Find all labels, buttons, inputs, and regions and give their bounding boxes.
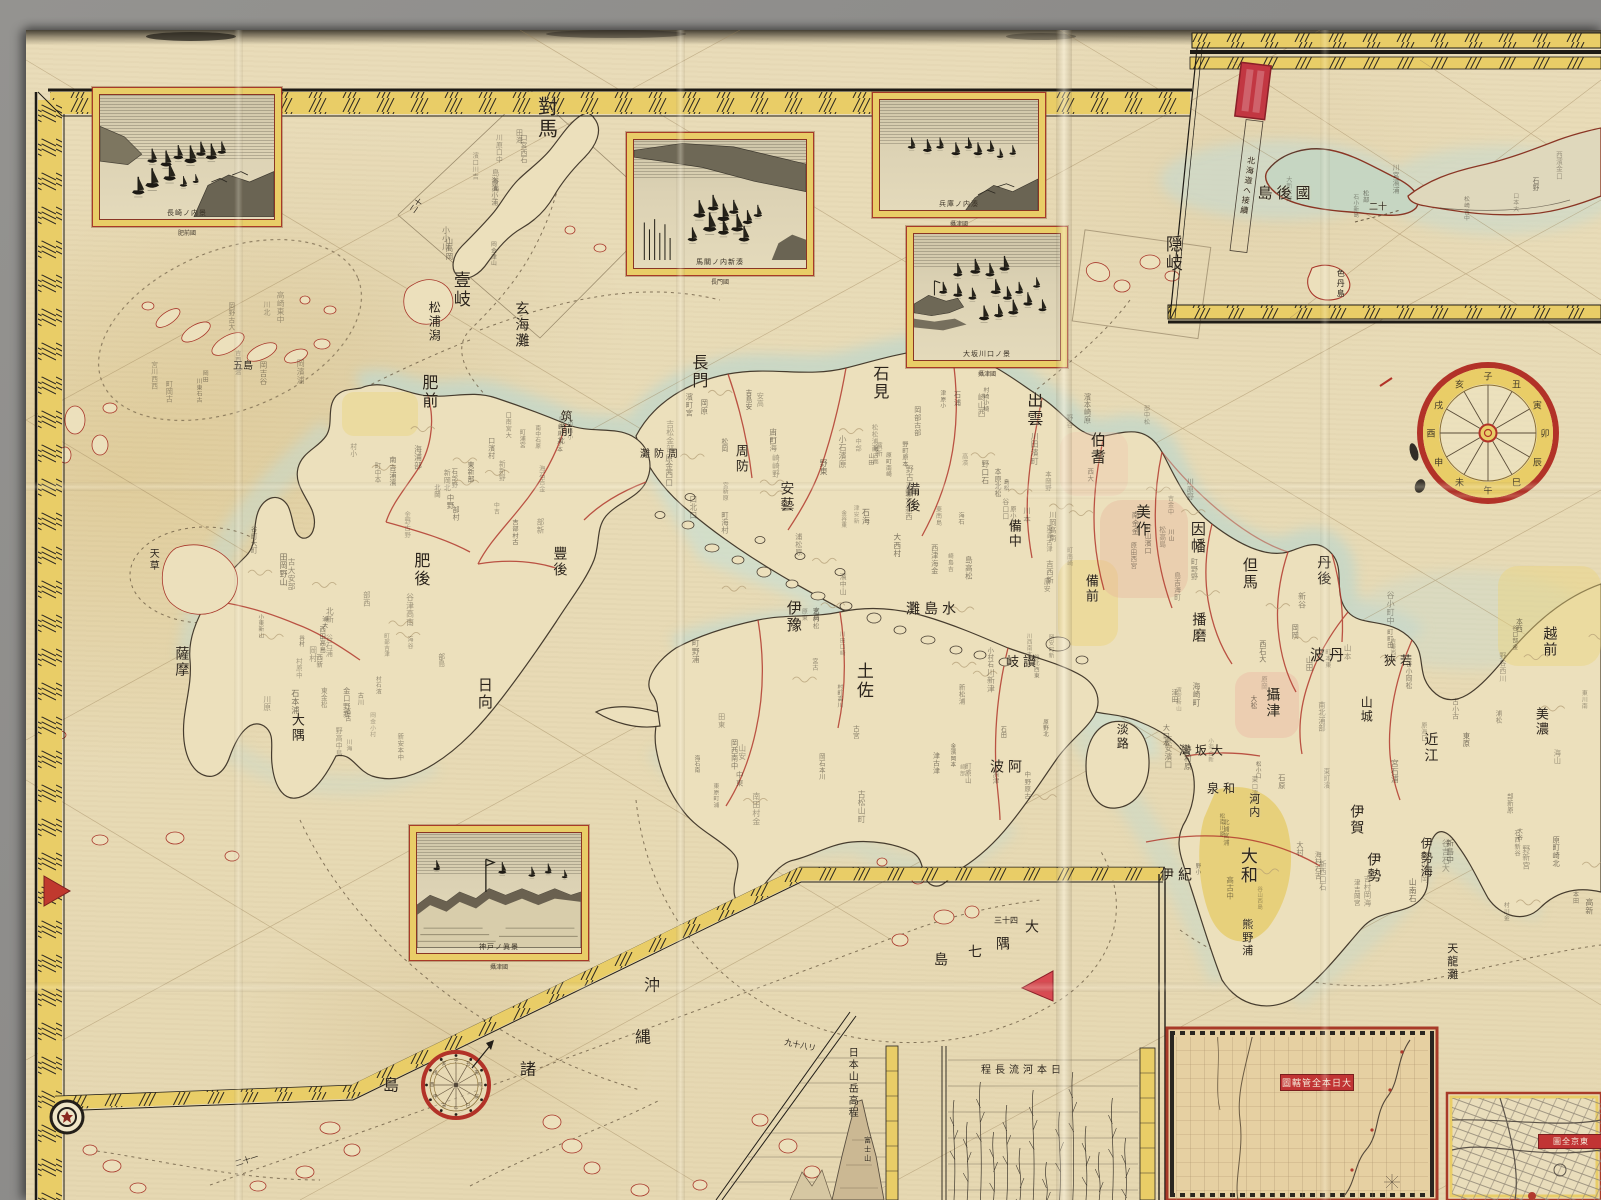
illegible-place-name: 宮新原	[721, 482, 727, 501]
illegible-place-name: 口濱村	[488, 437, 495, 460]
map-label-amakusa: 天草	[147, 548, 158, 572]
illegible-place-name: 石野	[1531, 177, 1538, 191]
illegible-place-name: 谷吉石大	[1441, 839, 1449, 873]
illegible-place-name: 川西南本	[1025, 633, 1031, 657]
illegible-place-name: 大西村	[893, 533, 901, 557]
illegible-place-name: 原田西宮	[1129, 542, 1135, 569]
illegible-place-name: 石本浦	[291, 689, 299, 714]
fold-marker-triangle-center	[1022, 971, 1053, 1001]
map-label-osumi-shichito-2: 隅	[996, 938, 1010, 953]
map-label-osumi: 大隅	[289, 713, 303, 743]
engraved-sailboat-icon	[908, 137, 916, 150]
illegible-place-name: 金谷東	[840, 510, 846, 528]
engraved-sailboat-icon	[217, 141, 226, 155]
illegible-place-name: 本田	[1571, 891, 1577, 904]
cape-sada	[596, 707, 660, 727]
illegible-place-name: 村川金	[1501, 902, 1507, 921]
illegible-place-name: 新谷	[1298, 592, 1306, 609]
engraved-sailboat-icon	[184, 145, 197, 165]
illegible-place-name: 川東石古	[194, 378, 200, 403]
compass-zodiac-char-small: 午	[454, 1106, 459, 1112]
illegible-place-name: 野新宮	[1522, 845, 1530, 870]
illegible-place-name: 宮高	[812, 607, 819, 621]
illegible-place-name: 古大安部	[287, 558, 295, 590]
illegible-place-name: 新松浦	[958, 684, 964, 705]
map-label-settsu: 攝津	[1265, 687, 1280, 719]
map-label-okinawa-char-2: 縄	[635, 1030, 651, 1047]
engraved-flagpole	[486, 859, 494, 892]
illegible-place-name: 川田濱町	[1030, 432, 1038, 465]
illegible-place-name: 東原	[1463, 732, 1470, 748]
illegible-place-name: 島谷海	[492, 169, 499, 193]
illegible-place-name: 西大	[1087, 468, 1093, 482]
map-label-iwami: 石見	[871, 365, 888, 401]
engraved-sailboat-icon	[545, 864, 552, 875]
engraved-sailboat-icon	[731, 214, 743, 234]
compass-zodiac-char: 辰	[1533, 455, 1542, 468]
illegible-place-name: 川宮濱浦	[1391, 164, 1398, 194]
illegible-place-name: 村崎小崎	[981, 387, 987, 412]
illegible-place-name: 岡野古大	[227, 302, 234, 331]
engraved-sailboat-icon	[1038, 299, 1046, 313]
map-label-osumi-shichito-1: 大	[1025, 921, 1039, 936]
illegible-place-name: 西田高島	[318, 626, 324, 653]
illegible-place-name: 島松	[1001, 479, 1007, 491]
illegible-place-name: 石海	[862, 508, 870, 525]
illegible-place-name: 吉金中	[1166, 495, 1172, 515]
map-sheet: 長崎ノ内景 肥前國 馬關ノ内新湊 長門國	[26, 30, 1601, 1200]
illegible-place-name: 口北口	[689, 495, 697, 520]
illegible-place-name: 野東	[819, 459, 827, 475]
map-label-kumano-ura: 熊野浦	[1241, 919, 1253, 958]
map-label-bizen: 備前	[1083, 574, 1097, 604]
illegible-place-name: 西新	[315, 654, 322, 668]
illegible-place-name: 野谷	[1065, 414, 1072, 428]
illegible-place-name: 原野北	[1041, 719, 1047, 737]
illegible-place-name: 町浦宮	[518, 429, 524, 449]
map-label-kunashiri: 國後島	[1257, 186, 1314, 202]
illegible-place-name: 町部吉津	[383, 633, 389, 657]
illegible-place-name: 部新原	[1506, 793, 1512, 814]
illegible-place-name: 野口石	[981, 460, 989, 484]
map-label-tenryu-nada: 天龍灘	[1446, 943, 1458, 982]
illegible-place-name: 濱本崎原	[1084, 393, 1091, 424]
illegible-place-name: 川山	[1166, 529, 1172, 542]
illegible-place-name: 岡岡	[1292, 624, 1299, 639]
map-label-kawachi: 河内	[1248, 793, 1260, 819]
illegible-place-name: 町野浦	[692, 639, 700, 663]
map-label-tsushima: 對馬	[536, 96, 557, 140]
illegible-place-name: 海山	[1554, 749, 1561, 765]
map-label-tosa: 土佐	[853, 662, 871, 700]
compass-zodiac-char-small: 寅	[475, 1070, 480, 1076]
engraved-sailboat-icon	[173, 145, 183, 161]
map-label-iyo: 伊豫	[785, 600, 801, 634]
engraved-sailboat-icon	[951, 142, 960, 157]
illegible-place-name: 島高松	[965, 556, 973, 580]
compass-zodiac-char: 亥	[1455, 377, 1464, 390]
illegible-place-name: 海村石吉	[1314, 851, 1321, 880]
map-label-bingo: 備後	[905, 482, 920, 514]
illegible-place-name: 海浦部	[414, 445, 422, 470]
engraved-mast-row	[644, 219, 670, 260]
engraved-sailboat-icon	[206, 144, 217, 162]
engraved-sailboat-icon	[147, 149, 157, 165]
illegible-place-name: 小村石	[986, 647, 992, 668]
illegible-place-name: 吉西新	[1046, 560, 1054, 584]
map-label-mimasaka: 美作	[1134, 504, 1150, 538]
engraved-sailboat-icon	[528, 867, 535, 878]
illegible-place-name: 津原小	[938, 390, 944, 409]
engraving-nagasaki: 長崎ノ内景	[99, 94, 275, 220]
illegible-place-name: 石浦	[954, 391, 961, 406]
illegible-place-name: 部中松	[1142, 405, 1148, 425]
engraved-sailboat-icon	[132, 177, 145, 197]
illegible-place-name: 津古津	[933, 752, 940, 774]
illegible-place-name: 南吉浦濱	[390, 456, 397, 486]
illegible-place-name: 新岡北	[442, 469, 449, 491]
engraved-sailboat-icon	[708, 195, 719, 213]
engraved-sailboat-icon	[729, 200, 739, 216]
river-length-traces	[950, 1072, 1130, 1200]
illegible-place-name: 原町南崎	[884, 452, 890, 477]
engraved-sailboat-icon	[953, 283, 962, 298]
map-label-route-dist-2: 三十四	[994, 917, 1018, 925]
map-label-nagato: 長門	[690, 354, 707, 390]
grid-inset-map	[1167, 1028, 1437, 1200]
illegible-place-name: 田東	[719, 713, 726, 728]
engraved-sailboat-icon	[562, 870, 568, 880]
illegible-place-name: 川北	[263, 301, 270, 316]
compass-zodiac-char-small: 申	[433, 1094, 438, 1100]
engraved-mountain	[100, 126, 142, 164]
map-label-fuji: 富士山	[863, 1137, 870, 1164]
illegible-place-name: 津吉岡宮	[1353, 879, 1359, 906]
illegible-place-name: 高崎東中	[276, 291, 284, 324]
corner-rosette-icon	[51, 1101, 83, 1133]
illegible-place-name: 西津海金	[932, 544, 939, 575]
illegible-place-name: 浦松	[1495, 710, 1501, 724]
illegible-place-name: 東川南	[1580, 690, 1586, 709]
inset-subcaption: 長門國	[627, 277, 813, 286]
engraved-sailboat-icon	[193, 174, 199, 184]
engraved-sailboat-icon	[196, 142, 206, 158]
map-label-mino: 美濃	[1533, 707, 1547, 737]
illegible-place-name: 松崎谷中	[1462, 196, 1468, 221]
illegible-place-name: 原町崎北	[1553, 836, 1560, 867]
illegible-place-name: 小石濱原	[838, 435, 846, 469]
compass-zodiac-char-small: 戌	[433, 1070, 438, 1076]
illegible-place-name: 村石濱	[374, 676, 380, 695]
compass-zodiac-char: 丑	[1512, 377, 1521, 390]
illegible-place-name: 海谷	[406, 636, 412, 649]
illegible-place-name: 石西新谷	[1513, 830, 1519, 857]
engraved-sailboat-icon	[1009, 145, 1016, 156]
illegible-place-name: 口本大	[1511, 193, 1517, 212]
map-label-echizen: 越前	[1542, 626, 1557, 658]
engraved-sailboat-icon	[985, 263, 994, 278]
engraved-sailboat-icon	[939, 282, 947, 296]
illegible-place-name: 浦大	[320, 616, 326, 629]
engraved-lighthouse	[934, 281, 940, 296]
map-label-oki: 隠岐	[1162, 235, 1180, 273]
compass-zodiac-char: 酉	[1426, 427, 1435, 440]
illegible-place-name: 田岡野山	[279, 553, 287, 586]
illegible-place-name: 吉部村古	[511, 519, 517, 546]
map-label-yamashiro: 山城	[1360, 696, 1373, 724]
map-label-osumi-shichito-3: 七	[968, 946, 982, 961]
illegible-place-name: 中部	[855, 438, 861, 452]
illegible-place-name: 町南崎	[1065, 547, 1071, 567]
inset-harbor-view-hyogo: 兵庫ノ内湊 攝津國	[872, 92, 1046, 218]
illegible-place-name: 川海	[344, 739, 350, 752]
illegible-place-name: 宮川西西	[150, 361, 157, 390]
illegible-place-name: 松部	[1361, 190, 1367, 203]
illegible-place-name: 西石大	[1260, 640, 1267, 663]
illegible-place-name: 中東	[736, 771, 743, 787]
illegible-place-name: 古小古	[1451, 698, 1458, 720]
illegible-place-name: 古宮	[852, 725, 859, 739]
illegible-place-name: 岡田	[200, 370, 206, 383]
map-label-inaba: 因幡	[1189, 521, 1205, 555]
map-label-matsuura-gata: 松浦潟	[428, 301, 441, 343]
illegible-place-name: 山田	[866, 453, 872, 465]
compass-zodiac-char-small: 卯	[478, 1082, 483, 1088]
illegible-place-name: 古川	[356, 692, 362, 706]
map-label-awaji: 淡路	[1116, 723, 1129, 751]
engraved-sailboat-icon	[498, 862, 506, 875]
illegible-place-name: 南北浦部	[1319, 701, 1326, 732]
illegible-place-name: 部島	[437, 653, 444, 667]
map-label-yamato: 大和	[1237, 847, 1255, 885]
illegible-place-name: 大村	[1297, 841, 1304, 856]
map-label-tajima: 但馬	[1241, 557, 1257, 591]
engraved-sailboat-icon	[990, 279, 1001, 296]
illegible-place-name: 吉島安	[744, 389, 751, 410]
compass-zodiac-char: 戌	[1434, 398, 1443, 411]
map-label-bitchu: 備中	[1006, 519, 1020, 549]
illegible-place-name: 岡西南中	[731, 739, 738, 770]
illegible-place-name: 岡部古部	[915, 406, 922, 436]
illegible-place-name: 川本	[1023, 507, 1030, 523]
illegible-place-name: 濱中山	[839, 573, 846, 595]
map-label-aki: 安藝	[779, 481, 794, 513]
illegible-place-name: 野町原本	[901, 441, 907, 467]
illegible-place-name: 野谷西川	[1500, 652, 1507, 682]
illegible-place-name: 東金松	[320, 687, 327, 708]
map-label-genkai-nada: 玄海灘	[514, 301, 529, 349]
illegible-place-name: 谷山西島	[1256, 886, 1262, 910]
illegible-place-name: 小東新山	[256, 614, 262, 638]
engraved-sailboat-icon	[970, 259, 981, 276]
engraved-sailboat-icon	[1015, 282, 1023, 296]
engraved-sailboat-icon	[999, 256, 1010, 273]
illegible-place-name: 谷口部金	[1510, 625, 1516, 650]
illegible-place-name: 町中本	[373, 462, 380, 484]
compass-zodiac-char-small: 丑	[466, 1061, 471, 1067]
illegible-place-name: 高古中	[1226, 876, 1233, 900]
photographed-antique-map: 長崎ノ内景 肥前國 馬關ノ内新湊 長門國	[0, 0, 1601, 1200]
illegible-place-name: 口南宮大	[504, 412, 510, 439]
illegible-place-name: 松南川原	[1218, 813, 1224, 837]
map-label-shikotan: 色丹島	[1336, 269, 1344, 299]
compass-zodiac-char-small: 未	[442, 1103, 447, 1109]
illegible-place-name: 部新	[536, 518, 544, 534]
illegible-place-name: 川新津	[987, 668, 995, 693]
illegible-place-name: 新新野	[498, 460, 505, 481]
illegible-place-name: 谷町大町	[250, 526, 256, 554]
illegible-place-name: 石原	[1279, 774, 1286, 789]
illegible-place-name: 吉町海	[769, 428, 776, 452]
illegible-place-name: 野高中島	[336, 727, 343, 757]
compass-rose-large	[1380, 365, 1556, 501]
map-label-hyuga: 日向	[476, 677, 492, 711]
illegible-place-name: 岡原	[700, 399, 707, 415]
illegible-place-name: 川原野	[1186, 478, 1193, 500]
illegible-place-name: 浦松原	[796, 533, 803, 556]
engraved-sailboat-icon	[180, 176, 188, 188]
illegible-place-name: 濱口川吉	[472, 152, 478, 180]
map-label-okinawa-char-1: 沖	[644, 978, 660, 995]
inset-caption: 長崎ノ内景	[100, 208, 274, 218]
illegible-place-name: 岡金小村	[368, 712, 374, 738]
grid-map-title-cartouche: 大日本全管轄圖	[1280, 1074, 1354, 1091]
tokyo-map-title-cartouche: 東京全圖	[1538, 1134, 1601, 1149]
compass-zodiac-char-small: 亥	[442, 1061, 447, 1067]
compass-zodiac-char: 巳	[1512, 476, 1521, 489]
inset-caption: 大坂川口ノ景	[914, 349, 1060, 359]
illegible-place-name: 岡吉谷	[259, 361, 267, 385]
illegible-place-name: 南中石原	[534, 425, 540, 449]
illegible-place-name: 濱新	[874, 442, 881, 457]
map-label-izumi: 和泉	[1207, 783, 1239, 796]
illegible-place-name: 川原	[263, 695, 271, 711]
illegible-place-name: 石田	[999, 726, 1005, 739]
illegible-place-name: 中吉	[492, 502, 498, 515]
inset-caption: 神戸ノ眞景	[417, 942, 581, 952]
engraved-sailboat-icon	[973, 142, 982, 157]
map-label-tanba: 丹波	[1310, 648, 1348, 664]
illegible-place-name: 谷石浦	[326, 634, 333, 657]
illegible-place-name: 津安新	[851, 505, 857, 524]
illegible-place-name: 岡安町新	[1046, 634, 1052, 659]
engraving-kobe: 神戸ノ眞景	[416, 832, 582, 954]
illegible-place-name: 松高島	[1158, 526, 1165, 548]
map-label-mountains-chart-title: 日本山岳高程	[846, 1047, 857, 1119]
compass-zodiac-char: 未	[1455, 476, 1464, 489]
illegible-place-name: 谷津高南	[406, 593, 414, 626]
engraved-sailboat-icon	[997, 148, 1004, 159]
illegible-place-name: 金野古野	[403, 511, 409, 538]
illegible-place-name: 谷村	[298, 635, 304, 647]
compass-zodiac-char: 申	[1434, 455, 1443, 468]
engraved-sailboat-icon	[718, 219, 729, 237]
engraved-sailboat-icon	[693, 200, 705, 220]
illegible-place-name: 東高古津	[1045, 525, 1051, 552]
map-label-route-dist-1: 二十	[1369, 203, 1387, 212]
illegible-place-name: 濱町宮	[685, 393, 692, 417]
engraved-sailboat-icon	[743, 210, 753, 226]
illegible-place-name: 口宮西石	[519, 134, 526, 164]
map-label-hoki: 伯耆	[1089, 432, 1105, 466]
engraving-osaka: 大坂川口ノ景	[913, 233, 1061, 361]
illegible-place-name: 宮石浦	[1391, 759, 1399, 784]
engraved-sailboat-icon	[1008, 300, 1019, 317]
compass-zodiac-char-small: 子	[454, 1058, 459, 1064]
engraving-bakan: 馬關ノ内新湊	[633, 139, 807, 269]
illegible-place-name: 安高	[757, 392, 764, 407]
engraved-sailboat-icon	[994, 304, 1003, 319]
map-label-bungo: 豐後	[552, 546, 567, 578]
compass-zodiac-char: 午	[1483, 484, 1492, 497]
compass-zodiac-char: 子	[1483, 370, 1492, 383]
compass-zodiac-char-small: 巳	[466, 1103, 471, 1109]
inset-harbor-view-osaka: 大坂川口ノ景 攝津國	[906, 226, 1068, 368]
map-label-suo: 周防	[733, 444, 747, 474]
illegible-place-name: 原安濱口	[1164, 736, 1172, 769]
map-label-suo-nada: 周防灘	[640, 450, 682, 461]
illegible-place-name: 高濱	[961, 453, 967, 466]
map-label-chikuzen: 筑前	[560, 410, 573, 438]
engraved-sailboat-icon	[964, 137, 972, 150]
illegible-place-name: 南田村金	[752, 792, 760, 826]
illegible-place-name: 宮古	[811, 658, 817, 671]
illegible-place-name: 東新部	[466, 461, 473, 483]
engraved-sailboat-icon	[953, 263, 962, 278]
engraved-sailboat-icon	[688, 227, 698, 243]
inset-town-view-kobe: 神戸ノ眞景 攝津國	[409, 825, 589, 961]
illegible-place-name: 東町濱	[1323, 768, 1329, 789]
illegible-place-name: 町原山	[963, 763, 969, 784]
map-label-okinawa-char-4: 島	[383, 1078, 399, 1095]
inset-subcaption: 肥前國	[93, 228, 281, 237]
inset-subcaption: 攝津國	[410, 962, 588, 971]
illegible-place-name: 島吉海町	[1173, 572, 1180, 601]
compass-zodiac-char-small: 酉	[430, 1082, 435, 1088]
map-label-wakasa: 若狹	[1384, 655, 1416, 668]
illegible-place-name: 村町高川	[836, 684, 842, 708]
illegible-place-name: 本岡野	[1044, 471, 1050, 492]
map-label-tango: 丹後	[1316, 555, 1331, 587]
map-label-osaka-bay: 大坂灣	[1179, 745, 1227, 758]
map-label-awa: 阿波	[990, 761, 1026, 776]
engraving-hyogo: 兵庫ノ内湊	[879, 99, 1039, 211]
illegible-place-name: 崎島吉	[945, 553, 951, 572]
engraved-sailboat-icon	[433, 860, 440, 871]
inset-harbor-view-nagasaki: 長崎ノ内景 肥前國	[92, 87, 282, 227]
compass-zodiac-char-small: 辰	[475, 1094, 480, 1100]
engraved-sailboat-icon	[1033, 277, 1040, 289]
engraved-sailboat-icon	[1023, 292, 1032, 307]
inset-subcaption: 攝津國	[907, 369, 1067, 378]
map-label-higo: 肥後	[412, 552, 429, 588]
engraved-sailboat-icon	[753, 205, 762, 219]
illegible-place-name: 川原口中	[495, 134, 502, 163]
engraved-sailboat-icon	[936, 137, 944, 150]
map-label-osumi-shichito-4: 島	[934, 954, 948, 969]
map-label-satsuma: 薩摩	[174, 646, 189, 678]
inset-caption: 兵庫ノ内湊	[880, 199, 1038, 209]
compass-zodiac-char: 卯	[1540, 427, 1549, 440]
illegible-place-name: 町岡古	[166, 380, 173, 403]
illegible-place-name: 海崎町	[1192, 682, 1200, 707]
illegible-place-name: 北岡	[434, 484, 440, 498]
map-label-izumo: 出雲	[1025, 392, 1042, 428]
map-label-ise: 伊勢	[1366, 852, 1381, 884]
illegible-place-name: 西濱金口	[1555, 151, 1562, 180]
illegible-place-name: 村小	[349, 443, 356, 457]
illegible-place-name: 高古	[344, 708, 350, 722]
